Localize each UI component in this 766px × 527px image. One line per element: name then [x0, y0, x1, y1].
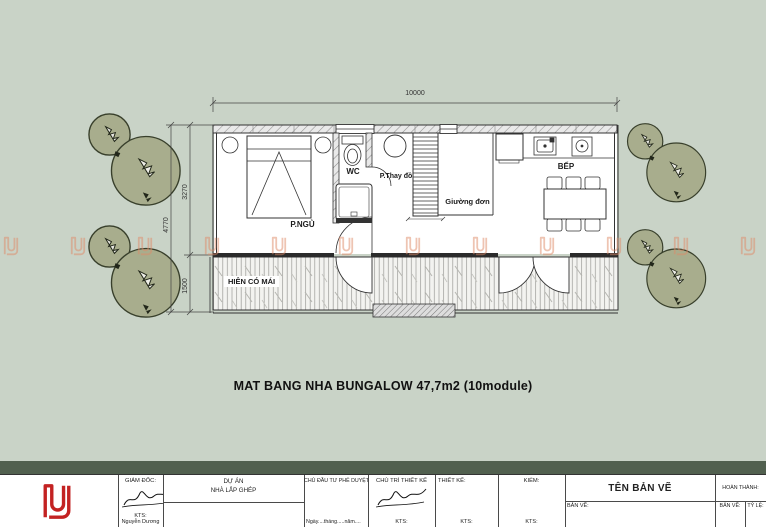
- investor-label: CHỦ ĐẦU TƯ PHÊ DUYỆT: [304, 478, 368, 484]
- dim-height-main: 3270: [182, 184, 189, 200]
- project-name: NHÀ LẮP GHÉP: [163, 487, 304, 494]
- investor-cell: CHỦ ĐẦU TƯ PHÊ DUYỆT Ngày....tháng.....n…: [304, 475, 369, 527]
- completed-label: HOÀN THÀNH:: [715, 475, 766, 501]
- kitchen-sink: [534, 137, 556, 155]
- drawing-sheet: 4770 3270 1500 10000 P.NGỦ WC P.Thay đồ …: [0, 0, 766, 527]
- scale-label: TỶ LỆ:: [745, 503, 766, 509]
- dsd-watermark-icon: [5, 238, 17, 255]
- wc-wall-right: [366, 133, 372, 167]
- designer-cell: THIẾT KẾ: KTS:: [435, 475, 499, 527]
- checker-cell: KIỂM: KTS:: [498, 475, 566, 527]
- director-name: Nguyễn Dương: [122, 519, 160, 525]
- room-label-wc: WC: [343, 167, 363, 176]
- title-block: GIÁM ĐỐC: KTS: Nguyễn Dương DỰ ÁN NHÀ LẮ…: [0, 474, 766, 527]
- toilet: [342, 136, 363, 166]
- window-top-2: [440, 125, 457, 134]
- room-label-bedroom: P.NGỦ: [280, 220, 325, 229]
- plan-title: MAT BANG NHA BUNGALOW 47,7m2 (10module): [0, 379, 766, 393]
- dim-height-total: 4770: [163, 217, 170, 233]
- tree-cluster-right-bottom: [628, 230, 706, 308]
- dsd-watermark-icon: [72, 238, 84, 255]
- completion-cell: HOÀN THÀNH: BẢN VẼ: TỶ LỆ:: [715, 475, 766, 527]
- room-label-changing: P.Thay đồ: [372, 173, 420, 180]
- entry-step: [373, 304, 455, 317]
- designer-label: THIẾT KẾ:: [435, 478, 498, 484]
- drawing-name-label: TÊN BẢN VẼ: [565, 475, 715, 501]
- room-label-single-bed: Giường đơn: [440, 197, 495, 206]
- sheet-label: BẢN VẼ:: [715, 503, 745, 509]
- design-lead-label: CHỦ TRÌ THIẾT KẾ: [368, 478, 435, 484]
- dim-width-total: 10000: [330, 90, 500, 97]
- checker-label: KIỂM:: [498, 478, 565, 484]
- dsd-logo: [40, 483, 74, 520]
- dim-height-porch: 1500: [182, 278, 189, 294]
- stove: [572, 137, 592, 156]
- design-lead-title: KTS:: [368, 519, 435, 525]
- dining-set: [544, 177, 606, 231]
- director-label: GIÁM ĐỐC:: [118, 478, 163, 484]
- project-label: DỰ ÁN: [163, 478, 304, 485]
- room-label-kitchen: BẾP: [552, 162, 580, 171]
- designer-title: KTS:: [435, 519, 498, 525]
- tree-cluster-left-top: [89, 114, 180, 205]
- checker-title: KTS:: [498, 519, 565, 525]
- fridge: [496, 134, 523, 163]
- drawing-label: BẢN VẼ:: [567, 503, 589, 509]
- project-cell: DỰ ÁN NHÀ LẮP GHÉP: [163, 475, 305, 527]
- sheet-border-band: [0, 461, 766, 474]
- drawing-name-cell: TÊN BẢN VẼ BẢN VẼ:: [565, 475, 716, 527]
- dsd-watermark-icon: [742, 238, 754, 255]
- director-cell: GIÁM ĐỐC: KTS: Nguyễn Dương: [118, 475, 164, 527]
- title-block-logo-cell: [0, 475, 119, 527]
- tree-cluster-right-top: [628, 124, 706, 202]
- double-bed: [247, 136, 311, 218]
- design-lead-signature: [376, 487, 428, 509]
- tree-cluster-left-bottom: [89, 226, 180, 317]
- room-label-porch: HIÊN CÓ MÁI: [224, 276, 279, 287]
- director-signature: [122, 487, 164, 509]
- window-top-1: [336, 125, 374, 134]
- design-lead-cell: CHỦ TRÌ THIẾT KẾ KTS:: [368, 475, 436, 527]
- investor-date-line: Ngày....tháng.....năm....: [304, 519, 368, 525]
